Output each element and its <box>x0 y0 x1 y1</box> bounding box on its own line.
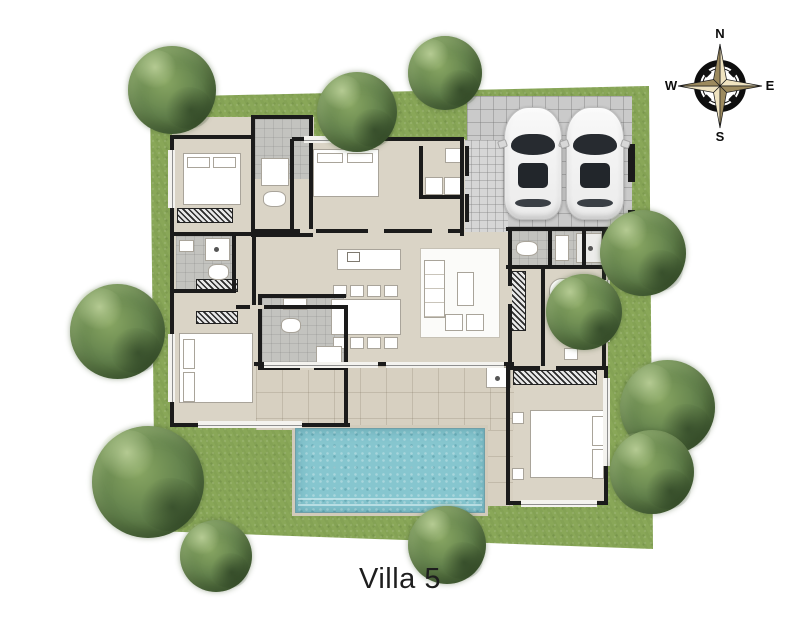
pillow <box>183 372 195 402</box>
wall <box>419 146 423 199</box>
wall <box>548 229 552 267</box>
carport-pillar <box>628 144 635 182</box>
toilet <box>263 191 286 207</box>
toilet <box>516 241 538 256</box>
compass-label-s: S <box>716 129 725 144</box>
washer <box>425 177 443 195</box>
sofa <box>424 260 445 318</box>
wall <box>541 267 545 368</box>
shower-drain <box>214 247 219 252</box>
hall-closet <box>511 271 526 331</box>
car-sunroof <box>580 163 610 188</box>
tree <box>92 426 204 538</box>
door-opening <box>508 286 512 304</box>
wall <box>506 366 608 370</box>
car-windshield <box>511 134 555 155</box>
armchair <box>466 314 484 331</box>
pillow <box>187 157 210 168</box>
tree <box>128 46 216 134</box>
compass-rose: N E S W <box>664 26 776 144</box>
compass-label-w: W <box>665 78 678 93</box>
kitchen-sink <box>347 252 360 262</box>
wall <box>251 115 255 237</box>
wardrobe <box>177 208 233 223</box>
wall <box>232 233 236 293</box>
dining-chair <box>350 337 364 349</box>
door-opening <box>432 229 448 233</box>
wall <box>260 294 346 298</box>
window <box>603 378 610 466</box>
dining-chair <box>384 337 398 349</box>
pool-step <box>298 498 482 500</box>
vanity <box>555 235 569 261</box>
door-opening <box>300 229 316 233</box>
entry-walkway <box>463 140 508 233</box>
wall <box>421 195 461 199</box>
window <box>521 500 597 507</box>
window <box>168 334 175 402</box>
plan-title: Villa 5 <box>0 563 800 596</box>
compass-star <box>678 44 762 128</box>
car-sunroof <box>518 163 548 188</box>
wall <box>506 366 510 505</box>
toilet <box>208 264 229 280</box>
pillow <box>347 153 373 163</box>
tree <box>610 430 694 514</box>
car-2 <box>566 107 624 220</box>
pillow <box>213 157 236 168</box>
wall <box>290 139 294 236</box>
tree <box>546 274 622 350</box>
pool-step <box>298 504 482 506</box>
wall <box>309 115 313 237</box>
shower-drain <box>588 246 593 251</box>
compass-label-e: E <box>766 78 775 93</box>
sliding-glass-door <box>386 362 504 368</box>
car-1 <box>504 107 562 220</box>
window <box>168 150 175 208</box>
compass-label-n: N <box>715 26 724 41</box>
nightstand <box>512 412 524 424</box>
window <box>198 421 302 428</box>
sink <box>179 240 194 252</box>
vanity <box>261 158 289 186</box>
wardrobe <box>196 311 238 324</box>
pillow <box>183 339 195 369</box>
wall <box>251 233 311 237</box>
car-rear-window <box>515 199 551 207</box>
wall <box>582 229 586 267</box>
wall <box>174 289 236 293</box>
wall <box>172 135 254 139</box>
wall <box>344 366 348 425</box>
swimming-pool <box>295 428 485 513</box>
wall <box>172 232 254 236</box>
wall <box>460 139 464 236</box>
toilet <box>281 318 301 333</box>
wall <box>506 265 606 269</box>
wall <box>344 305 348 370</box>
wall <box>251 115 313 119</box>
tree <box>600 210 686 296</box>
tree <box>317 72 397 152</box>
door-opening <box>540 366 556 370</box>
armchair <box>445 314 463 331</box>
car-rear-window <box>577 199 613 207</box>
pillow <box>317 153 343 163</box>
coffee-table <box>457 272 474 306</box>
sliding-glass-door <box>264 362 378 368</box>
tree <box>70 284 165 379</box>
dining-chair <box>367 285 381 297</box>
dining-chair <box>350 285 364 297</box>
wall <box>252 229 256 305</box>
wardrobe <box>513 370 597 385</box>
nightstand <box>512 468 524 480</box>
washbasin <box>495 376 500 381</box>
villa-floor-plan: N E S W Villa 5 <box>0 0 800 624</box>
dining-chair <box>367 337 381 349</box>
door-opening <box>368 229 384 233</box>
door-opening <box>250 305 264 309</box>
stool <box>564 348 578 360</box>
car-windshield <box>573 134 617 155</box>
wall <box>506 227 608 231</box>
dining-chair <box>384 285 398 297</box>
wall <box>254 229 462 233</box>
tree <box>408 36 482 110</box>
